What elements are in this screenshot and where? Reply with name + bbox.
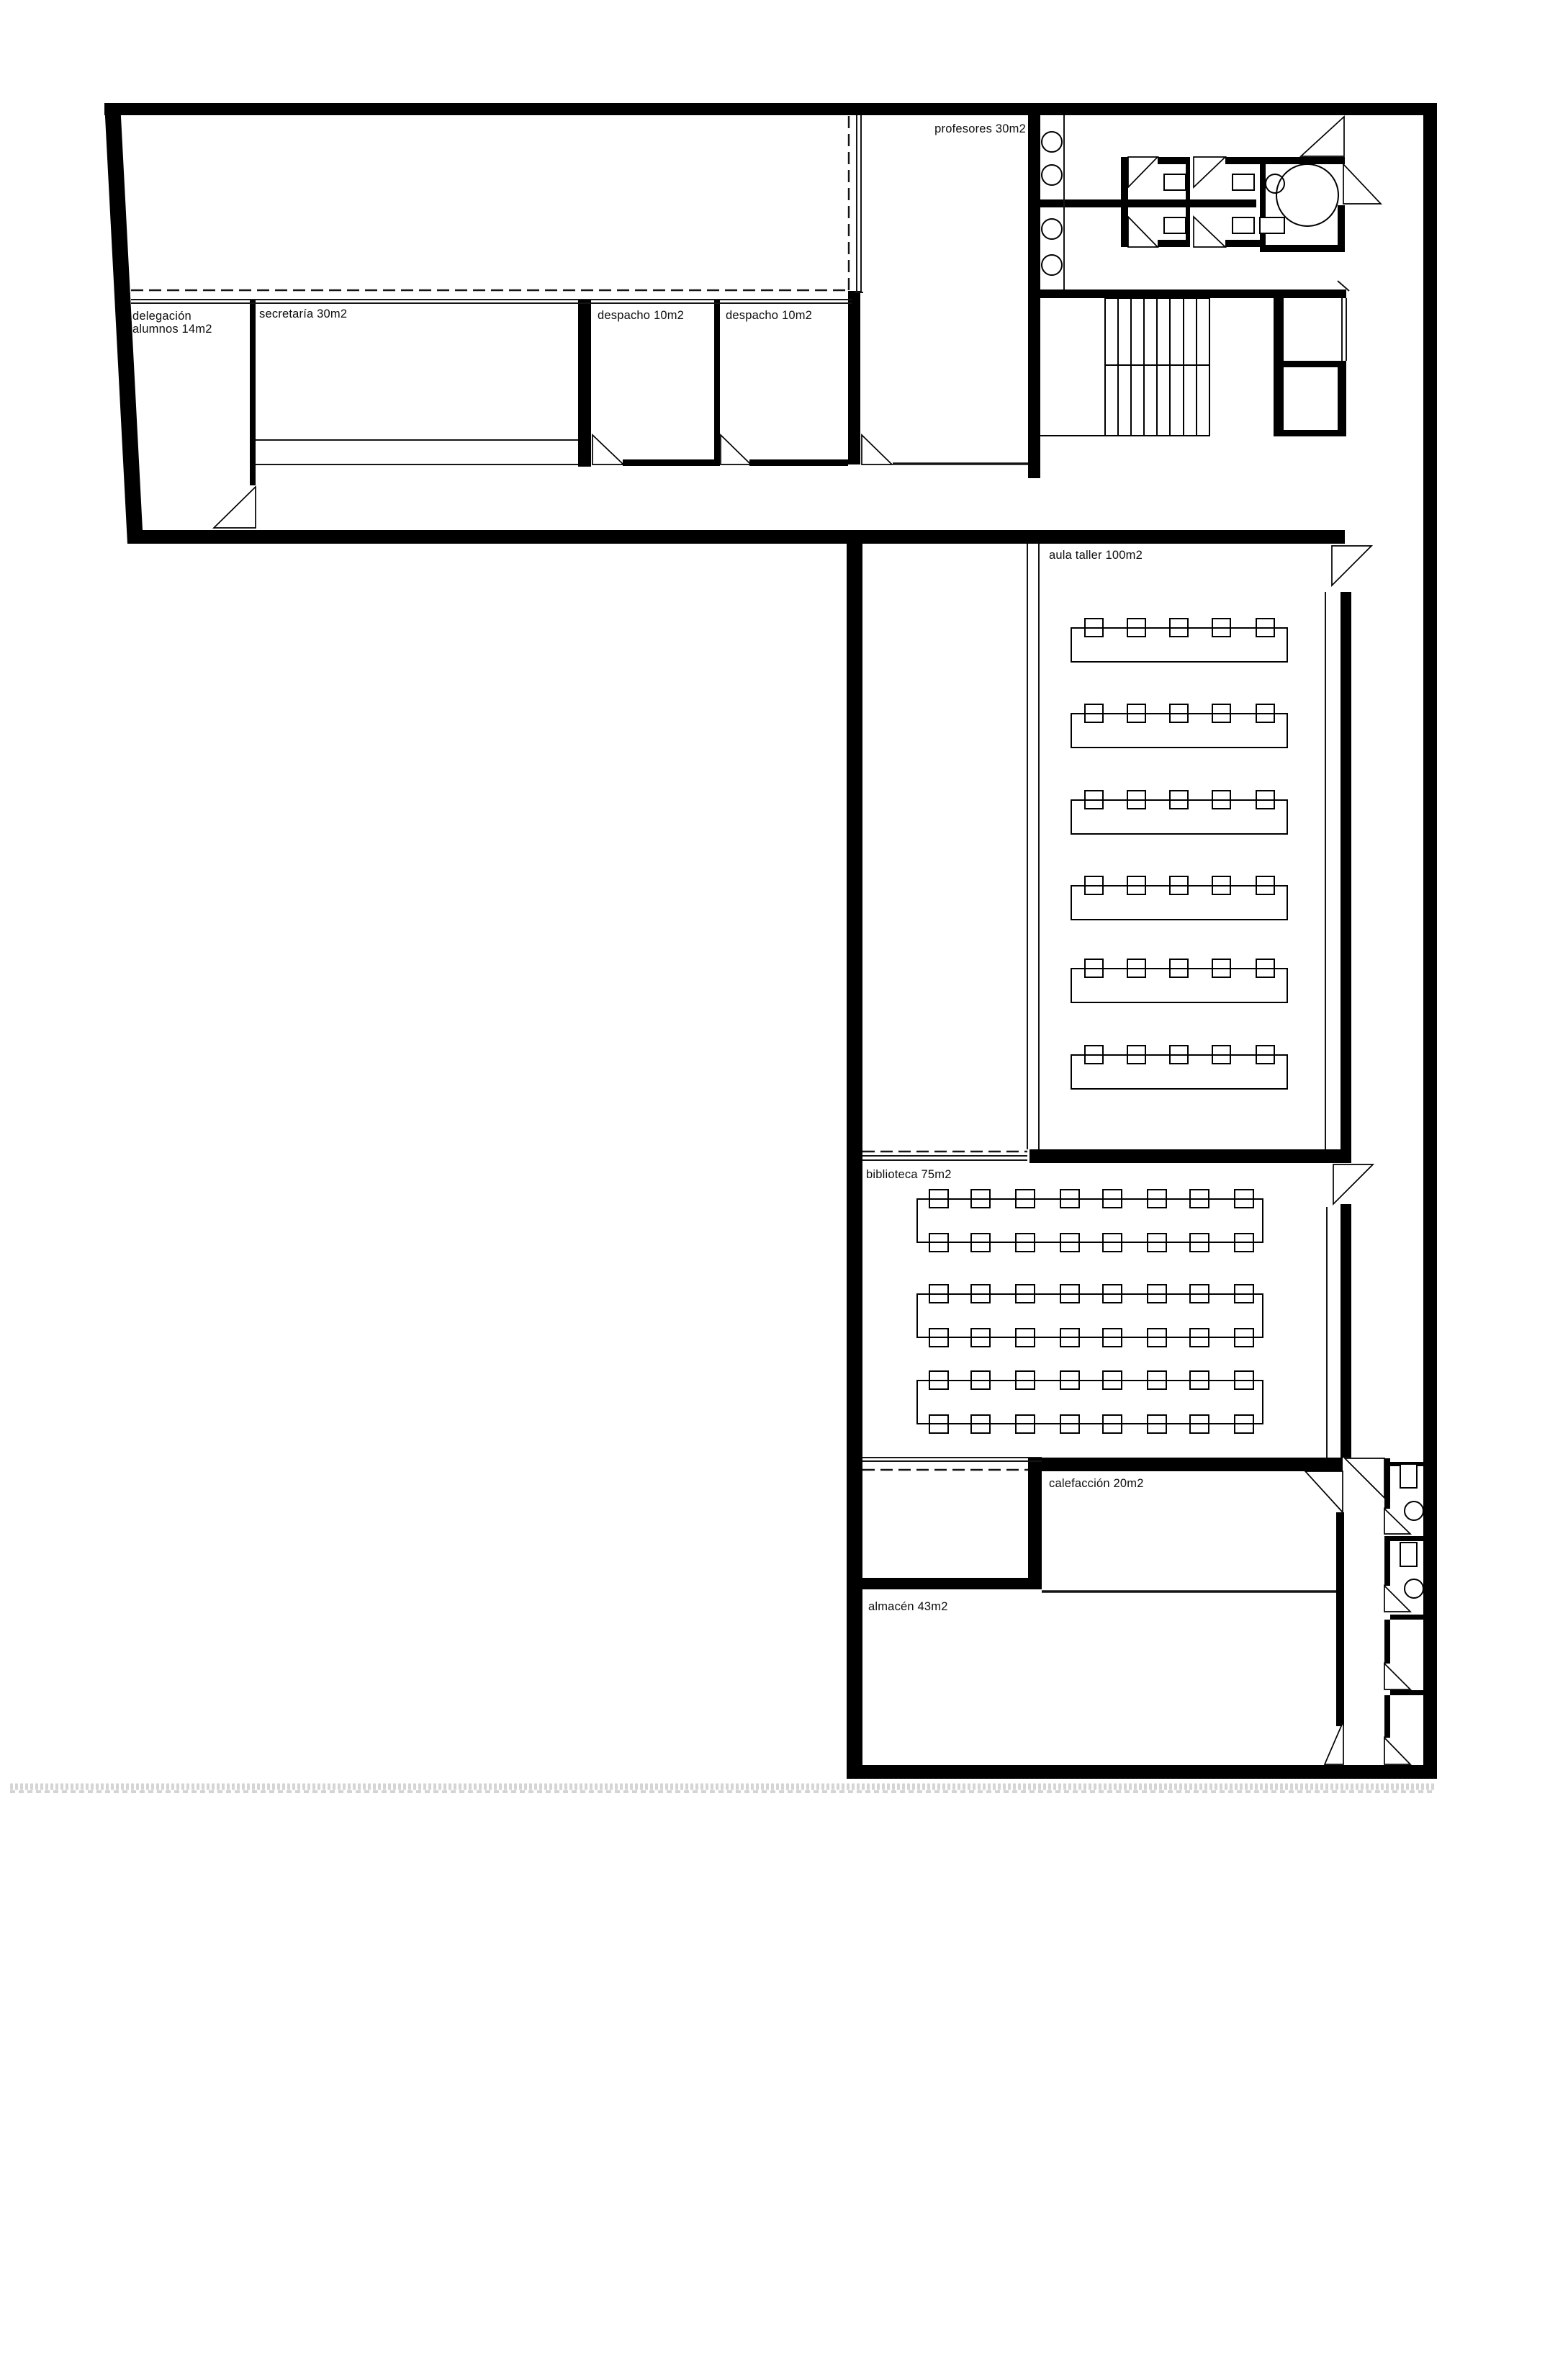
scan-noise xyxy=(10,1787,1434,1792)
wall-shaft2-east xyxy=(1338,367,1346,436)
wall-east xyxy=(1423,103,1437,1779)
room-label-profesores: profesores 30m2 xyxy=(934,122,1026,135)
room-label-despacho-2: despacho 10m2 xyxy=(726,309,812,322)
wall-north xyxy=(104,103,1437,115)
wall-cabin-top-2 xyxy=(1225,157,1260,164)
wall-south-upper-wing xyxy=(127,530,1345,544)
wall-shaft2-south xyxy=(1274,430,1346,436)
room-label-almacen: almacén 43m2 xyxy=(868,1600,948,1613)
room-label-despacho-1: despacho 10m2 xyxy=(598,309,684,322)
wall-west-lower-wing xyxy=(847,530,862,1779)
wall-cabin-bottom-2 xyxy=(1225,240,1260,247)
wall-biblioteca-east xyxy=(1341,1204,1351,1458)
room-regions xyxy=(131,115,1423,1765)
wall-despacho1-south xyxy=(623,459,714,466)
wall-aseos-west xyxy=(1028,112,1040,478)
room-aseos-este xyxy=(1390,1462,1423,1765)
room-label-aula-taller: aula taller 100m2 xyxy=(1049,549,1143,562)
room-label-delegacion-2: alumnos 14m2 xyxy=(132,323,212,336)
wall-accwc-north xyxy=(1260,157,1345,164)
wall-accwc-east xyxy=(1338,205,1345,245)
toilet-icon xyxy=(1400,1464,1417,1488)
wall-aseos-south xyxy=(1040,289,1346,298)
room-label-delegacion-1: delegación xyxy=(132,310,192,323)
wall-calefaccion-north xyxy=(1028,1458,1343,1471)
wall-despacho2-south xyxy=(749,459,848,466)
room-pasillo xyxy=(862,546,1027,1149)
toilet-icon xyxy=(1233,217,1254,233)
toilet-icon xyxy=(1233,174,1254,190)
wall-aseos-middle xyxy=(1040,199,1256,207)
wall-wc-div-3 xyxy=(1390,1690,1423,1695)
wall-accwc-south xyxy=(1260,245,1345,252)
wall-cabins-west xyxy=(1121,157,1128,247)
wall-wc-strip-2 xyxy=(1384,1536,1390,1586)
toilet-icon xyxy=(1164,217,1186,233)
room-label-biblioteca: biblioteca 75m2 xyxy=(866,1168,952,1181)
toilet-icon xyxy=(1400,1543,1417,1566)
room-hall xyxy=(131,115,847,290)
floor-plan-svg: delegación alumnos 14m2 secretaría 30m2 … xyxy=(0,0,1568,2370)
wall-wc-strip-3 xyxy=(1384,1620,1390,1664)
room-patio xyxy=(862,1461,1028,1578)
wall-cabin-top-1 xyxy=(1158,157,1186,164)
toilet-icon xyxy=(1260,217,1284,233)
wall-wc-div-2 xyxy=(1390,1615,1423,1620)
wall-aula-biblioteca xyxy=(1029,1149,1351,1163)
wall-wc-strip-4 xyxy=(1384,1695,1390,1738)
wall-despacho2-profesores xyxy=(848,291,860,464)
wall-despacho1-despacho2 xyxy=(714,299,720,466)
wall-secretaria-despacho1 xyxy=(578,299,591,467)
wall-wc-strip-1 xyxy=(1384,1458,1390,1509)
room-label-secretaria: secretaría 30m2 xyxy=(259,308,347,320)
wall-patio-east xyxy=(1028,1461,1042,1578)
floor-plan-page: delegación alumnos 14m2 secretaría 30m2 … xyxy=(0,0,1568,2370)
wall-aula-east xyxy=(1341,592,1351,1149)
wall-delegacion-secretaria xyxy=(250,299,256,485)
room-despacho-1 xyxy=(591,303,714,459)
room-profesores xyxy=(860,115,1028,464)
room-despacho-2 xyxy=(720,303,848,459)
wall-shaft-divider xyxy=(1274,361,1346,367)
wall-wc-div-1 xyxy=(1390,1536,1423,1541)
room-almacen xyxy=(862,1594,1336,1765)
toilet-icon xyxy=(1164,174,1186,190)
wall-south xyxy=(847,1765,1437,1779)
wall-almacen-east xyxy=(1336,1512,1344,1726)
wall-cabin-bottom-1 xyxy=(1158,240,1186,247)
room-label-calefaccion: calefacción 20m2 xyxy=(1049,1477,1144,1490)
room-delegacion-alumnos xyxy=(131,303,250,530)
wall-patio-south xyxy=(847,1578,1042,1589)
